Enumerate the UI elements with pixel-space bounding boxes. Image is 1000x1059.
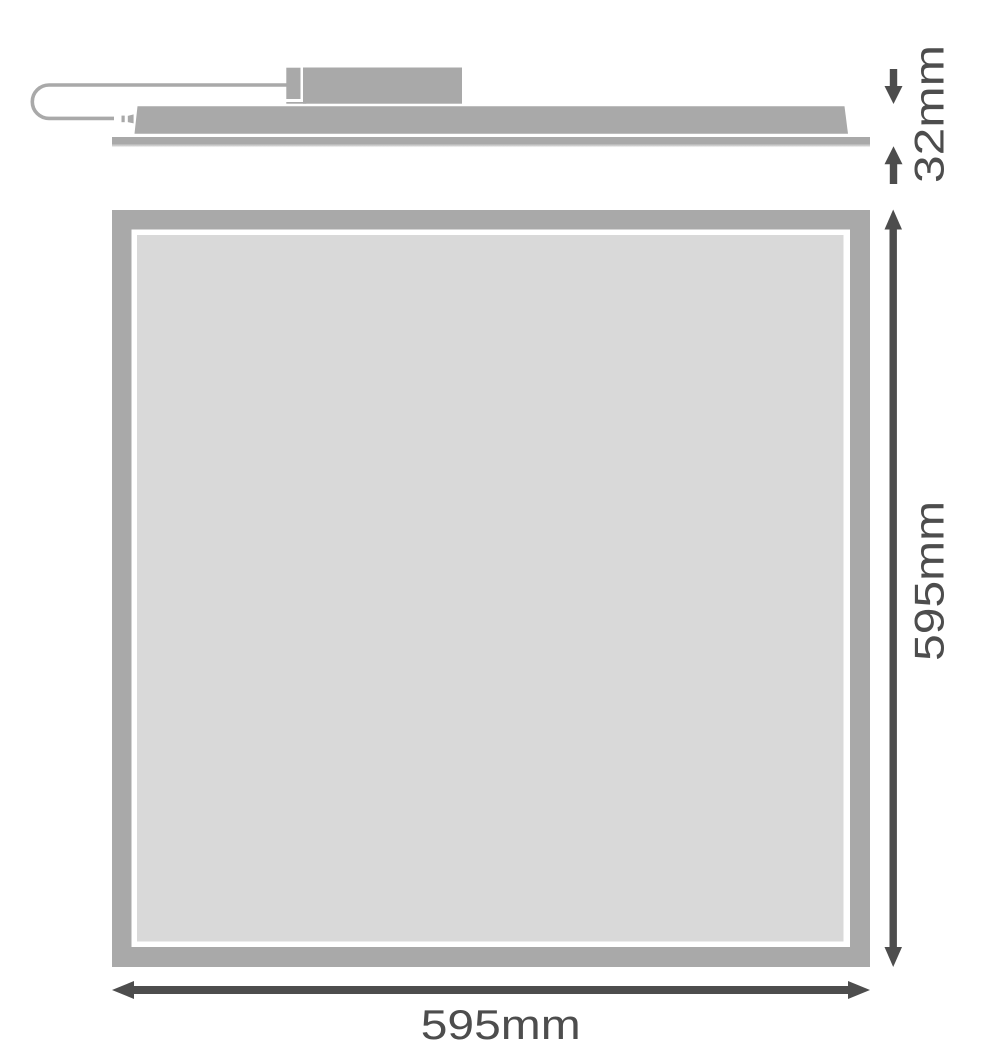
svg-text:32mm: 32mm — [905, 45, 952, 183]
svg-text:595mm: 595mm — [421, 1001, 581, 1048]
svg-text:595mm: 595mm — [905, 501, 952, 661]
